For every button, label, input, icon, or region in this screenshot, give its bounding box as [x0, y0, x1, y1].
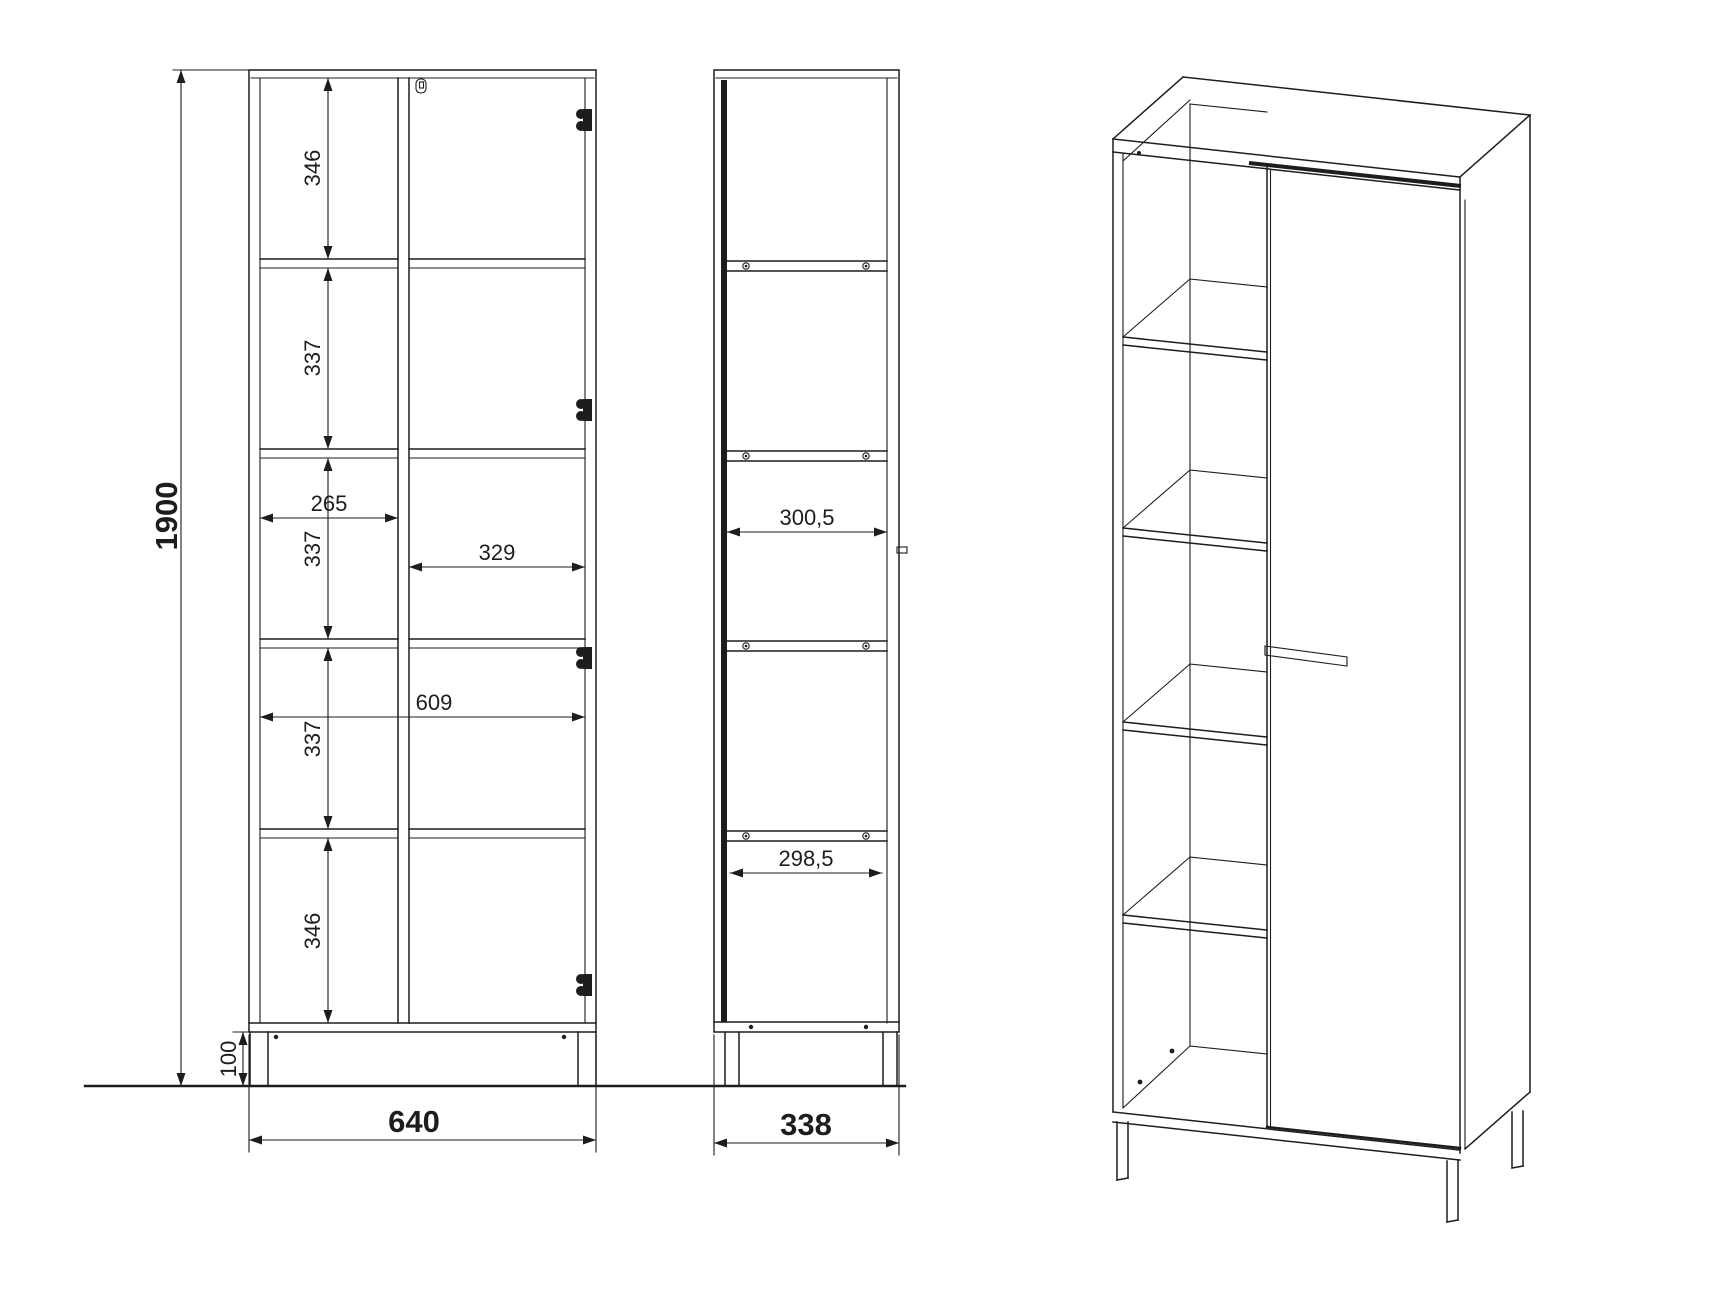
dim-label-overall-depth: 338 [780, 1107, 832, 1142]
dim-label-compartment-1: 346 [300, 150, 325, 187]
dim-label-overall-height: 1900 [149, 482, 184, 551]
screw-icon [562, 1035, 566, 1039]
hinge-icon [576, 974, 592, 996]
dim-label-interior-depth-upper: 300,5 [779, 505, 834, 530]
hinge-icon [576, 647, 592, 669]
dimension-right-compartment-width: 329 [409, 540, 585, 572]
dimension-compartment-1: 346 [300, 78, 333, 259]
dimension-interior-width: 609 [260, 690, 585, 722]
screw-icon [1170, 1049, 1175, 1054]
furniture-dimension-drawing: 1900 100 346 337 337 337 346 [0, 0, 1722, 1291]
dim-label-compartment-2: 337 [300, 340, 325, 377]
dim-label-left-compartment-width: 265 [311, 491, 348, 516]
iso-legs [1117, 1111, 1523, 1222]
cam-lock-icon [416, 79, 426, 93]
front-legs [250, 1032, 596, 1086]
door-edge [721, 80, 727, 1022]
dimension-overall-height: 1900 [149, 70, 249, 1086]
dim-label-interior-width: 609 [416, 690, 453, 715]
hinge-icon [576, 399, 592, 421]
screw-icon [864, 1025, 868, 1029]
dim-label-compartment-3: 337 [300, 531, 325, 568]
screw-icon [749, 1025, 753, 1029]
dim-label-leg-height: 100 [216, 1041, 241, 1078]
dimension-compartment-3: 337 [300, 458, 333, 639]
dim-label-compartment-5: 346 [300, 913, 325, 950]
technical-drawing-page: 1900 100 346 337 337 337 346 [0, 0, 1722, 1291]
side-shelves [727, 261, 887, 841]
dimension-overall-depth: 338 [714, 1035, 899, 1155]
side-legs [725, 1032, 897, 1086]
iso-shelves [1123, 279, 1267, 938]
screw-icon [274, 1035, 278, 1039]
door [1249, 163, 1461, 1148]
dimension-compartment-2: 337 [300, 268, 333, 449]
door-handle [1265, 646, 1347, 666]
dimension-leg-height: 100 [216, 1032, 250, 1086]
dimension-interior-depth-upper: 300,5 [727, 505, 887, 537]
door-top-gap [1249, 163, 1461, 186]
screw-icon [1137, 151, 1141, 155]
dimension-interior-depth-lower: 298,5 [730, 846, 882, 878]
dim-label-interior-depth-lower: 298,5 [778, 846, 833, 871]
isometric-view [1113, 77, 1530, 1222]
dimension-compartment-5: 346 [300, 838, 333, 1023]
dimension-left-compartment-width: 265 [260, 491, 398, 523]
dimension-overall-width: 640 [249, 1035, 596, 1152]
screw-icon [1138, 1080, 1143, 1085]
dimension-compartment-4: 337 [300, 648, 333, 829]
hinge-icon [576, 109, 592, 131]
dim-label-overall-width: 640 [388, 1104, 440, 1139]
dim-label-compartment-4: 337 [300, 721, 325, 758]
side-view [714, 70, 907, 1086]
dim-label-right-compartment-width: 329 [479, 540, 516, 565]
